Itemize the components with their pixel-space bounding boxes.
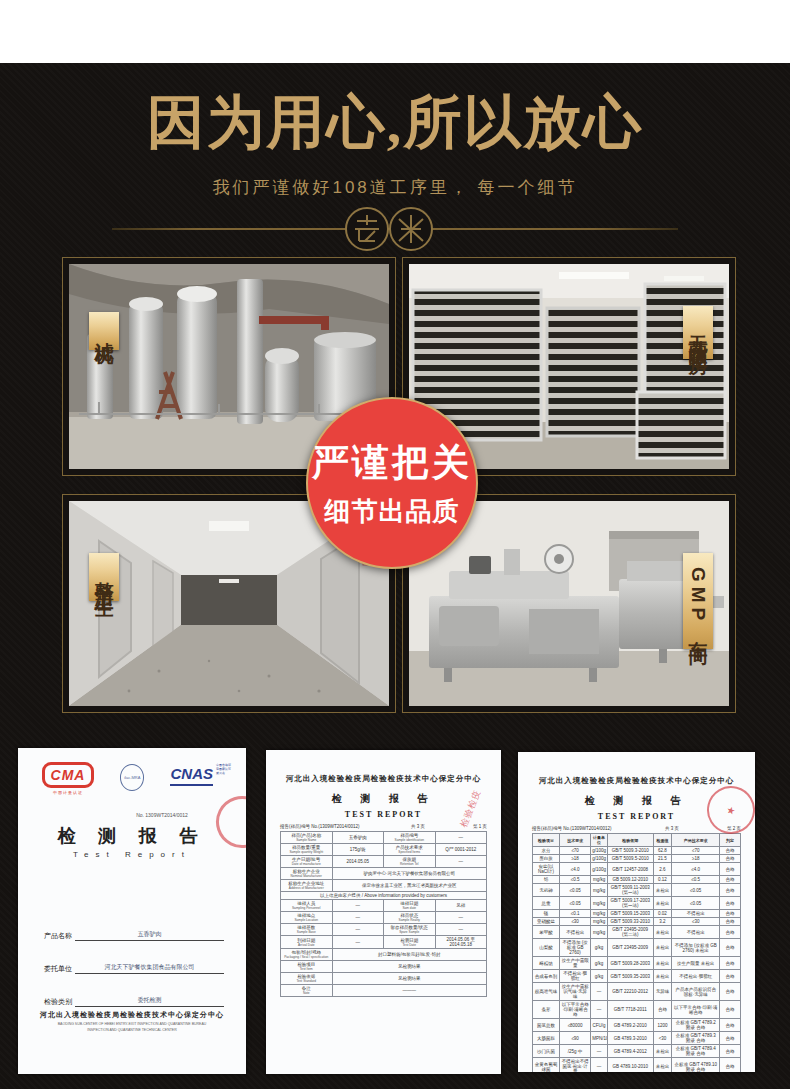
ilac-mra-logo: ilac-MRA <box>120 764 144 791</box>
table-cell: ≤0.05 <box>560 897 591 910</box>
table-cell: 合格 <box>653 1001 672 1019</box>
field-label: 留存样品数量/状态Spare Sample <box>384 924 436 936</box>
field-label: 备注Note <box>281 985 333 997</box>
table-cell: 合格 <box>720 926 741 939</box>
table-cell: 合成着色剂 <box>533 970 560 983</box>
field-label: 抽样基数Sample Base <box>281 924 333 936</box>
field-value: 2014.05.06 至 2014.05.18 <box>435 936 487 949</box>
column-header: 检测值 <box>653 834 672 847</box>
field-label: 检验项目Test Item <box>281 961 333 973</box>
table-cell: GB 5009.12-2010 <box>607 876 653 884</box>
table-header-row: 检验项目技术要求计量单位检验依据检测值产品技术要求判定 <box>533 834 741 847</box>
certificate-results-page: 河北出入境检验检疫局检验检疫技术中心保定分中心 检 测 报 告 TEST REP… <box>518 752 755 1072</box>
table-cell: 条形 <box>533 1001 560 1019</box>
table-cell: 未检出 <box>653 897 672 910</box>
table-cell: ≤4.0 <box>560 863 591 876</box>
certificate-info-page: 河北出入境检验检疫局检验检疫技术中心保定分中心 检 测 报 告 TEST REP… <box>266 750 501 1074</box>
table-cell: 0.02 <box>653 910 672 918</box>
table-cell: g/kg <box>591 939 608 957</box>
field-value: — <box>435 912 487 924</box>
table-cell: 未检出 <box>653 1058 672 1073</box>
table-cell: 未检出 <box>653 957 672 970</box>
table-row: 无机砷≤0.05mg/kgGB/T 5009.11-2003 (第一法)未检出≤… <box>533 884 741 897</box>
quality-badge: 严谨把关 细节出品质 <box>306 397 478 569</box>
table-row: 沙门氏菌/25g 中—GB 4789.4-2012未检出企标准 GB/T 478… <box>533 1045 741 1058</box>
table-row: 检验依据Test Standard见检测结果 <box>281 973 487 985</box>
table-cell: ≤70 <box>560 847 591 855</box>
table-row: 生产日期/批号Date of manufacture2014.05.05保质期R… <box>281 856 487 868</box>
field-value: 保定市徐水县工业区，黑龙江省高新技术产业区 <box>332 880 487 892</box>
field-label: 抽样日期Sam date <box>384 900 436 912</box>
cnas-logo: CNAS 中国合格评定国家认可委员会 <box>170 764 232 786</box>
table-cell: — <box>591 1058 608 1073</box>
field-label: 样品(产品)名称Sample Name <box>281 832 333 844</box>
table-row: 大肠菌群≤90MPN/100gGB 4789.3-2010<30企标准 GB/T… <box>533 1032 741 1045</box>
table-cell: MPN/100g <box>591 1032 608 1045</box>
field-value: 以上信息由客户提供 / Above information provided b… <box>281 892 487 900</box>
report-title-en: Test Report <box>18 850 246 859</box>
table-cell: 不得检出 <box>560 926 591 939</box>
table-row: 合成着色剂不得检出·胭脂红g/kgGB/T 5009.35-2003未检出不得检… <box>533 970 741 983</box>
photo-label-ribbon: 整洁卫生 <box>89 553 119 601</box>
table-row: 总汞≤0.05mg/kgGB/T 5009.17-2003 (第一法)未检出≤0… <box>533 897 741 910</box>
table-cell: GB/T 5009.11-2003 (第一法) <box>607 884 653 897</box>
cma-logo: CMA 中国计量认证 <box>42 762 94 795</box>
field-value: — <box>435 856 487 868</box>
table-cell: 不得检出·胭脂红 <box>672 970 720 983</box>
table-row: 镉≤0.1mg/kgGB/T 5009.15-20030.02不得检出合格 <box>533 910 741 918</box>
table-cell: 产品本产品标识符合国标·无异味 <box>672 983 720 1001</box>
table-cell: 合格 <box>720 855 741 863</box>
column-header: 检验依据 <box>607 834 653 847</box>
field-label: 标称生产企业地址Address of Manufacturer <box>281 880 333 892</box>
table-cell: GB 4789.2-2010 <box>607 1019 653 1032</box>
table-cell: 水分 <box>533 847 560 855</box>
promo-page: 因为用心,所以放心 我们严谨做好108道工序里， 每一个细节 <box>0 0 790 1089</box>
table-cell: — <box>591 1001 608 1019</box>
column-header: 检验项目 <box>533 834 560 847</box>
table-cell: 合格 <box>720 897 741 910</box>
field-value: — <box>435 924 487 936</box>
table-cell: 不得添加 (按标准 GB 2760) 未检出 <box>672 939 720 957</box>
table-cell: ≤0.05 <box>560 884 591 897</box>
table-cell: ≤0.5 <box>672 876 720 884</box>
table-cell: 糖精钠 <box>533 957 560 970</box>
table-cell: 大肠菌群 <box>533 1032 560 1045</box>
table-cell: 菌落总数 <box>533 1019 560 1032</box>
table-cell: ≤0.5 <box>560 876 591 884</box>
report-header: 河北出入境检验检疫局检验检疫技术中心保定分中心 <box>518 776 755 786</box>
table-cell: GB/T 5009.33-2010 <box>607 918 653 926</box>
table-cell: 不得检出·胭脂红 <box>560 970 591 983</box>
table-cell: 62.8 <box>653 847 672 855</box>
certificate-footer: 河北出入境检验检疫局检验检疫技术中心保定分中心 BAODING SUB-CENT… <box>18 1010 246 1032</box>
table-row: 以上信息由客户提供 / Above information provided b… <box>281 892 487 900</box>
table-cell: 合格 <box>720 1058 741 1073</box>
table-cell: ≤30 <box>672 918 720 926</box>
table-cell: 0.12 <box>653 876 672 884</box>
table-cell: mg/kg <box>591 876 608 884</box>
field-label: 抽样人员Sampling Personnel <box>281 900 333 912</box>
table-cell: 山梨酸 <box>533 939 560 957</box>
table-cell: ≥18 <box>560 855 591 863</box>
table-cell: ≤90 <box>560 1032 591 1045</box>
table-cell: 企标准 GB/T 4789.4 附录 合格 <box>672 1045 720 1058</box>
table-row: 超高泄气味按生产中需标识气味·无异味—GB/T 22210-2012无异味产品本… <box>533 983 741 1001</box>
field-client: 委托单位 河北天下驴餐饮集团食品有限公司 <box>44 963 224 974</box>
table-cell: GB/T 5009.28-2003 <box>607 957 653 970</box>
table-cell: ≤4.0 <box>672 863 720 876</box>
field-label: 检测日期Test Date <box>384 936 436 949</box>
table-cell: 合格 <box>720 957 741 970</box>
table-cell: g/kg <box>591 957 608 970</box>
divider <box>0 204 790 256</box>
table-row: 山梨酸不得添加 (按标准 GB 2760)g/kgGB/T 23495-2009… <box>533 939 741 957</box>
table-cell: 合格 <box>720 970 741 983</box>
field-value: 2014.05.05 <box>332 856 384 868</box>
table-cell: GB 4789.10-2010 <box>607 1058 653 1073</box>
table-cell: 按生产中需标识气味·无异味 <box>560 983 591 1001</box>
table-row: 抽样地点Sample Location—样品状态Sample Reality— <box>281 912 487 924</box>
table-cell: <30 <box>653 1032 672 1045</box>
table-cell: 苯甲酸 <box>533 926 560 939</box>
table-cell: ≤0.05 <box>672 897 720 910</box>
table-cell: ≤0.1 <box>560 910 591 918</box>
table-row: 包装/铅封/规格Packaging / Seal / specification… <box>281 949 487 961</box>
table-cell: 合格 <box>720 1032 741 1045</box>
table-cell: ≥18 <box>672 855 720 863</box>
report-meta: 报告(样品)编号 No.(1309WT2014/0012) 共 3 页 第 2 … <box>532 826 741 831</box>
table-cell: 未检出 <box>653 939 672 957</box>
table-row: 苯甲酸不得检出mg/kgGB/T 23495-2009 (第二法)未检出不得检出… <box>533 926 741 939</box>
table-cell: g/100g <box>591 855 608 863</box>
table-row: 样品(产品)名称Sample Name五香驴肉样品编号Sample identi… <box>281 832 487 844</box>
field-label: 到样日期Arrival Date <box>281 936 333 949</box>
field-label: 抽样地点Sample Location <box>281 912 333 924</box>
report-meta: 报告(样品)编号 No.(1309WT2014/0012) 共 3 页 第 1 … <box>280 824 487 829</box>
photo-label-ribbon: 无菌晾晒房 <box>683 306 713 359</box>
table-cell: GB/T 12457-2008 <box>607 863 653 876</box>
table-cell: GB/T 5009.17-2003 (第一法) <box>607 897 653 910</box>
table-cell: /25g 中 <box>560 1045 591 1058</box>
top-white-strip <box>0 0 790 63</box>
table-row: 菌落总数≤80000CFU/gGB 4789.2-20101200企标准 GB/… <box>533 1019 741 1032</box>
table-cell: 合格 <box>720 939 741 957</box>
table-cell: GB/T 23495-2009 <box>607 939 653 957</box>
table-cell: 企标准 GB/T 4789.2 附录 合格 <box>672 1019 720 1032</box>
column-header: 计量单位 <box>591 834 608 847</box>
column-header: 技术要求 <box>560 834 591 847</box>
table-cell: 企标准 GB/T 4789.10 附录 合格 <box>672 1058 720 1073</box>
field-label: 样品编号Sample identification <box>384 832 436 844</box>
table-cell: 3.2 <box>653 918 672 926</box>
table-cell: 以下平常合格·印刷·清晰合格 <box>560 1001 591 1019</box>
table-row: 检验项目Test Item见检测结果 <box>281 961 487 973</box>
table-row: 食盐(以NaCl计)≤4.0g/100gGB/T 12457-20082.6≤4… <box>533 863 741 876</box>
table-cell: mg/kg <box>591 884 608 897</box>
table-cell: 未检出 <box>653 970 672 983</box>
table-row: 标称生产企业Nominal Manufacturer驴肉罗中心·河北天下驴餐饮集… <box>281 868 487 880</box>
table-cell: 食盐(以NaCl计) <box>533 863 560 876</box>
table-row: 水分≤70g/100gGB/T 5009.3-201062.8≤70合格 <box>533 847 741 855</box>
table-cell: GB 4789.3-2010 <box>607 1032 653 1045</box>
table-cell: 未检出 <box>653 1045 672 1058</box>
table-cell: 以下平常合格·印刷·清晰合格 <box>672 1001 720 1019</box>
table-cell: 合格 <box>720 918 741 926</box>
certificate-cover-page: CMA 中国计量认证 ilac-MRA CNAS 中国合格评定国家认可委员会 N… <box>18 748 246 1074</box>
table-row: 样品数量/重量Sample quantity Weight175g/袋产品技术要… <box>281 844 487 856</box>
seal-icon <box>389 207 433 251</box>
table-row: 金黄色葡萄球菌不得检出不得菌落·检出·计量—GB 4789.10-2010未检出… <box>533 1058 741 1073</box>
table-cell: 铅 <box>533 876 560 884</box>
table-cell: ≤0.05 <box>672 884 720 897</box>
table-cell: 无机砷 <box>533 884 560 897</box>
table-cell: — <box>591 1045 608 1058</box>
table-row: 铅≤0.5mg/kgGB 5009.12-20100.12≤0.5合格 <box>533 876 741 884</box>
field-value: 见样 <box>435 900 487 912</box>
table-row: 到样日期Arrival Date—检测日期Test Date2014.05.06… <box>281 936 487 949</box>
report-title: 检 测 报 告 <box>18 824 246 848</box>
table-cell: 无异味 <box>653 983 672 1001</box>
table-cell: 合格 <box>720 910 741 918</box>
table-cell: ≤70 <box>672 847 720 855</box>
table-row: 亚硝酸盐≤30mg/kgGB/T 5009.33-20103.2≤30合格 <box>533 918 741 926</box>
table-cell: 不得检出 <box>672 926 720 939</box>
seal-icon <box>345 207 389 251</box>
report-number: No. 1309WT2014/0012 <box>18 812 246 818</box>
field-value: 见检测结果 <box>332 973 487 985</box>
field-label: 产品技术要求Specified Items <box>384 844 436 856</box>
field-value: 驴肉罗中心·河北天下驴餐饮集团食品有限公司 <box>332 868 487 880</box>
badge-headline: 严谨把关 <box>312 438 472 488</box>
table-cell: mg/kg <box>591 926 608 939</box>
table-cell: ≤30 <box>560 918 591 926</box>
table-cell: 合格 <box>720 847 741 855</box>
table-row: 抽样人员Sampling Personnel—抽样日期Sam date见样 <box>281 900 487 912</box>
field-value: 五香驴肉 <box>332 832 384 844</box>
field-label: 样品状态Sample Reality <box>384 912 436 924</box>
table-cell: 2.6 <box>653 863 672 876</box>
table-cell: 不得添加 (按标准 GB 2760) <box>560 939 591 957</box>
table-cell: GB/T 5009.5-2010 <box>607 855 653 863</box>
table-cell: GB/T 22210-2012 <box>607 983 653 1001</box>
table-row: 糖精钠按生产中需限量g/kgGB/T 5009.28-2003未检出按生产限量 … <box>533 957 741 970</box>
table-cell: — <box>591 983 608 1001</box>
field-value: — <box>435 832 487 844</box>
table-cell: mg/kg <box>591 910 608 918</box>
table-cell: 未检出 <box>653 926 672 939</box>
field-label: 包装/铅封/规格Packaging / Seal / specification <box>281 949 333 961</box>
table-cell: 合格 <box>720 1045 741 1058</box>
field-value: — <box>332 924 384 936</box>
table-cell: 合格 <box>720 876 741 884</box>
test-results-table: 检验项目技术要求计量单位检验依据检测值产品技术要求判定水分≤70g/100gGB… <box>532 833 741 1072</box>
table-cell: GB/T 7718-2011 <box>607 1001 653 1019</box>
table-cell: mg/kg <box>591 897 608 910</box>
table-cell: 按生产中需限量 <box>560 957 591 970</box>
table-row: 备注Note——— <box>281 985 487 997</box>
table-cell: 蛋白质 <box>533 855 560 863</box>
table-cell: 企标准 GB/T 4789.3 附录 合格 <box>672 1032 720 1045</box>
certificate-logos: CMA 中国计量认证 ilac-MRA CNAS 中国合格评定国家认可委员会 <box>42 762 232 795</box>
report-header: 河北出入境检验检疫局检验检疫技术中心保定分中心 <box>266 774 501 784</box>
table-cell: 合格 <box>720 863 741 876</box>
table-cell: GB/T 5009.3-2010 <box>607 847 653 855</box>
table-cell: 总汞 <box>533 897 560 910</box>
field-value: — <box>332 912 384 924</box>
table-cell: 沙门氏菌 <box>533 1045 560 1058</box>
field-label: 样品数量/重量Sample quantity Weight <box>281 844 333 856</box>
photo-label-ribbon: 滤机 <box>89 312 119 350</box>
field-value: — <box>332 936 384 949</box>
table-cell: 合格 <box>720 1001 741 1019</box>
table-cell: 超高泄气味 <box>533 983 560 1001</box>
table-cell: 不得检出不得菌落·检出·计量 <box>560 1058 591 1073</box>
table-cell: 合格 <box>720 1019 741 1032</box>
sample-info-table: 样品(产品)名称Sample Name五香驴肉样品编号Sample identi… <box>280 831 487 997</box>
table-row: 条形以下平常合格·印刷·清晰合格—GB/T 7718-2011合格以下平常合格·… <box>533 1001 741 1019</box>
table-cell: ≤80000 <box>560 1019 591 1032</box>
field-label: 检验依据Test Standard <box>281 973 333 985</box>
field-value: 封口塑料袋/包装完好/批发·铅封 <box>332 949 487 961</box>
table-cell: mg/kg <box>591 918 608 926</box>
table-cell: CFU/g <box>591 1019 608 1032</box>
field-label: 保质期Retention Tel <box>384 856 436 868</box>
page-title: 因为用心,所以放心 <box>0 84 790 162</box>
table-cell: GB/T 5009.35-2003 <box>607 970 653 983</box>
table-cell: g/kg <box>591 970 608 983</box>
table-row: 标称生产企业地址Address of Manufacturer保定市徐水县工业区… <box>281 880 487 892</box>
page-subtitle: 我们严谨做好108道工序里， 每一个细节 <box>0 176 790 199</box>
table-cell: 不得检出 <box>672 910 720 918</box>
column-header: 产品技术要求 <box>672 834 720 847</box>
table-cell: GB 4789.4-2012 <box>607 1045 653 1058</box>
column-header: 判定 <box>720 834 741 847</box>
field-product-name: 产品名称 五香驴肉 <box>44 930 224 941</box>
field-value: — <box>332 900 384 912</box>
table-cell: 金黄色葡萄球菌 <box>533 1058 560 1073</box>
table-cell: 21.5 <box>653 855 672 863</box>
badge-subline: 细节出品质 <box>325 494 460 529</box>
table-cell: 1200 <box>653 1019 672 1032</box>
field-value: ——— <box>332 985 487 997</box>
field-value: 175g/袋 <box>332 844 384 856</box>
table-cell: 合格 <box>720 884 741 897</box>
table-cell: g/100g <box>591 863 608 876</box>
field-value: Q/** 0001-2012 <box>435 844 487 856</box>
field-value: 见检测结果 <box>332 961 487 973</box>
table-cell: g/100g <box>591 847 608 855</box>
table-row: 抽样基数Sample Base—留存样品数量/状态Spare Sample— <box>281 924 487 936</box>
table-cell: 亚硝酸盐 <box>533 918 560 926</box>
table-cell: 按生产限量 未检出 <box>672 957 720 970</box>
table-cell: GB/T 5009.15-2003 <box>607 910 653 918</box>
table-cell: 镉 <box>533 910 560 918</box>
photo-label-ribbon: GMP车间 <box>683 553 713 649</box>
table-cell: 未检出 <box>653 884 672 897</box>
field-label: 标称生产企业Nominal Manufacturer <box>281 868 333 880</box>
table-cell: 合格 <box>720 983 741 1001</box>
table-cell: GB/T 23495-2009 (第二法) <box>607 926 653 939</box>
field-label: 生产日期/批号Date of manufacture <box>281 856 333 868</box>
table-row: 蛋白质≥18g/100gGB/T 5009.5-201021.5≥18合格 <box>533 855 741 863</box>
field-test-type: 检验类别 委托检测 <box>44 996 224 1007</box>
